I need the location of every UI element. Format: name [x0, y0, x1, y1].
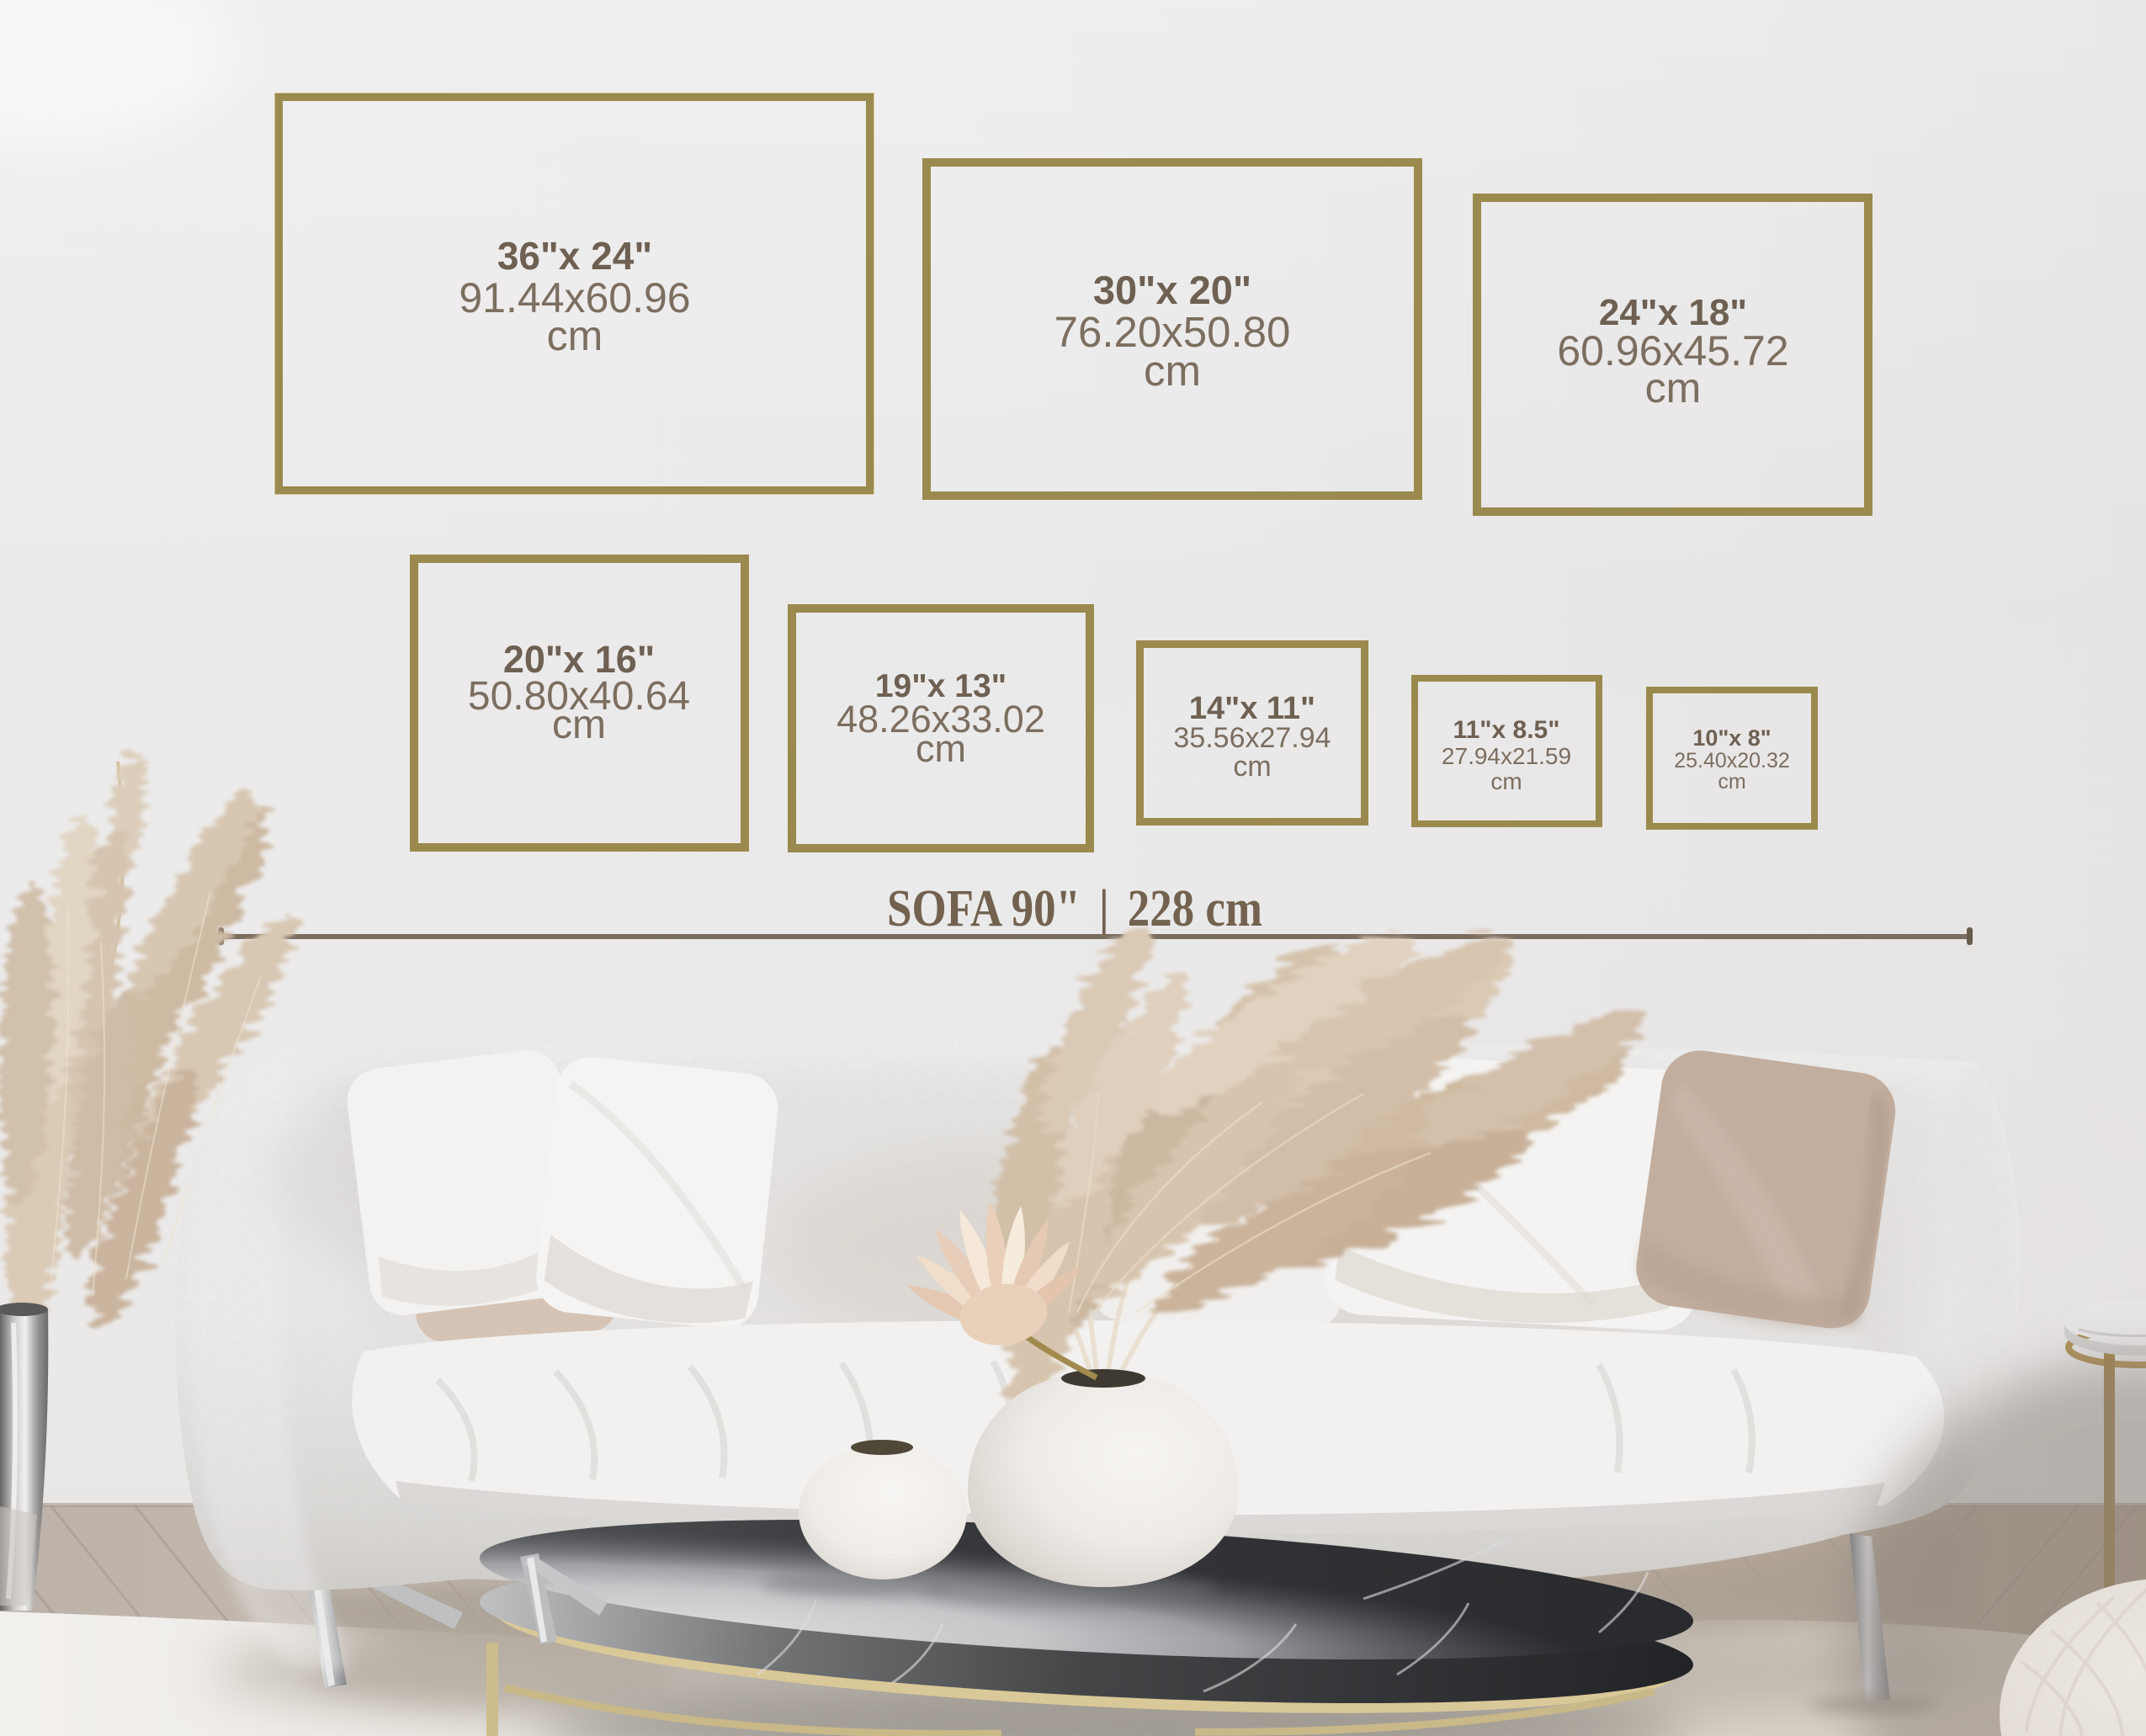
svg-text:25.40x20.32: 25.40x20.32 — [1674, 749, 1790, 772]
svg-text:36"x 24": 36"x 24" — [497, 234, 652, 278]
svg-text:cm: cm — [1645, 364, 1702, 411]
svg-text:14"x 11": 14"x 11" — [1189, 691, 1315, 726]
svg-text:cm: cm — [552, 703, 606, 747]
svg-text:27.94x21.59: 27.94x21.59 — [1442, 743, 1571, 769]
svg-text:cm: cm — [916, 727, 966, 770]
svg-text:30"x 20": 30"x 20" — [1093, 268, 1251, 312]
svg-text:10"x 8": 10"x 8" — [1692, 725, 1771, 751]
svg-text:cm: cm — [1718, 770, 1745, 794]
svg-text:SOFA 90" | 228 cm: SOFA 90" | 228 cm — [887, 880, 1262, 937]
svg-text:cm: cm — [547, 312, 603, 359]
svg-text:35.56x27.94: 35.56x27.94 — [1173, 722, 1331, 754]
svg-text:11"x 8.5": 11"x 8.5" — [1453, 716, 1560, 744]
svg-text:cm: cm — [1233, 751, 1271, 783]
svg-text:cm: cm — [1144, 347, 1201, 395]
svg-text:cm: cm — [1490, 768, 1522, 794]
